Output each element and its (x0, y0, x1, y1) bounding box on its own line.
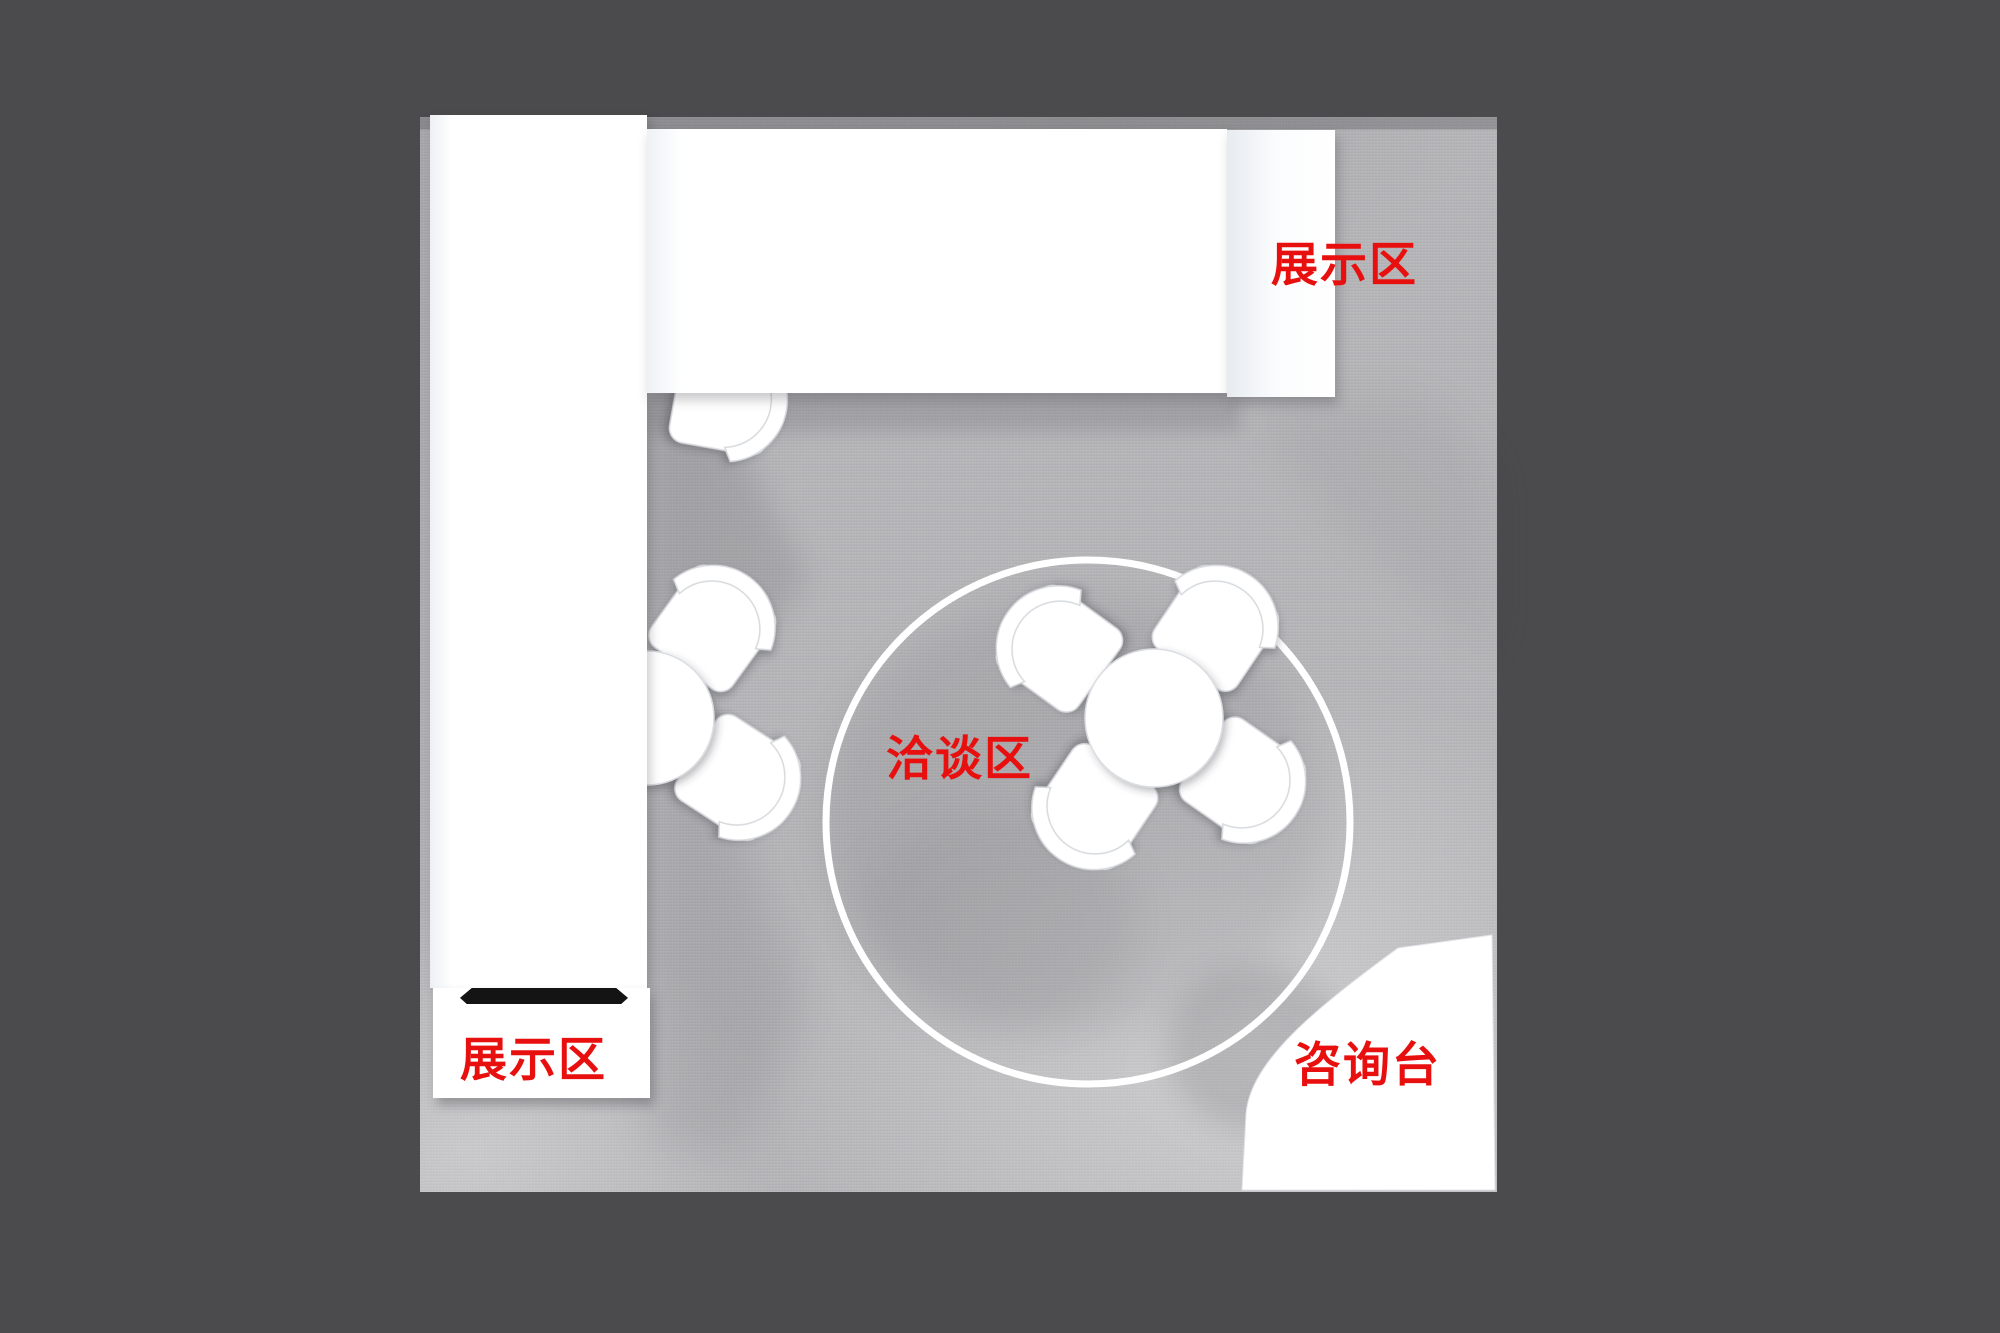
booth-floor-plan: 展示区 展示区 洽谈区 咨询台 (0, 0, 2000, 1333)
display-cabinet-shelf (460, 988, 628, 1004)
display-counter-top (647, 129, 1227, 393)
zone-label-information-desk: 咨询台 (1294, 1041, 1441, 1088)
zone-label-negotiation-area: 洽谈区 (886, 735, 1033, 782)
zone-label-display-area-left: 展示区 (460, 1036, 607, 1083)
zone-label-display-area-top: 展示区 (1271, 241, 1418, 288)
meeting-round-table (1085, 649, 1223, 787)
display-wall-left (430, 115, 647, 988)
